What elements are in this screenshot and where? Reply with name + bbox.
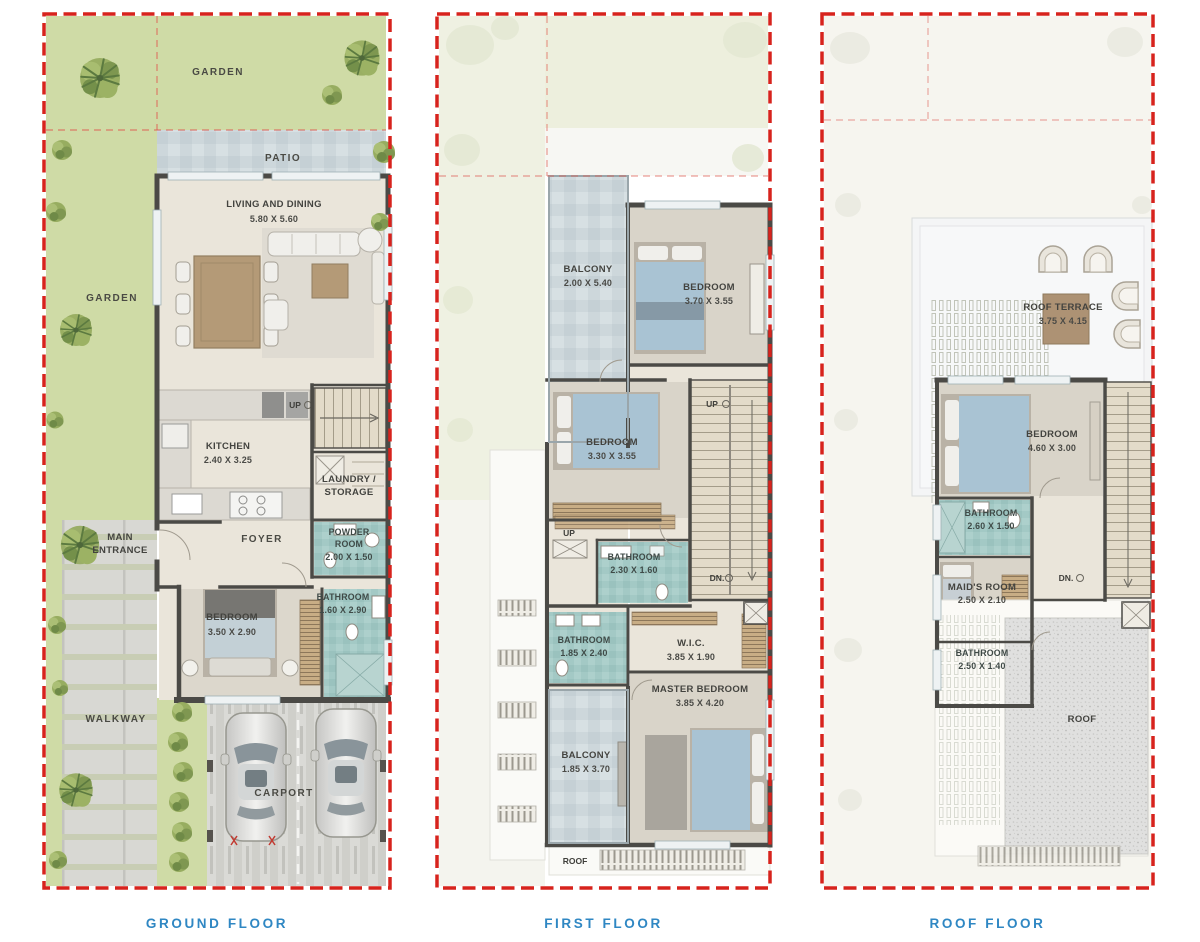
ground-entrance-path bbox=[62, 520, 157, 886]
label-roof-strip: ROOF bbox=[563, 856, 588, 866]
first-stairs bbox=[690, 380, 770, 600]
label-roof-terrace-dim: 3.75 X 4.15 bbox=[1039, 316, 1087, 326]
label-bathroom: BATHROOM bbox=[317, 592, 370, 602]
label-up-small: UP bbox=[563, 528, 575, 538]
label-balcony-bottom: BALCONY bbox=[561, 750, 610, 761]
label-kitchen-dim: 2.40 X 3.25 bbox=[204, 455, 252, 465]
label-powder-2: ROOM bbox=[335, 539, 363, 549]
first-shaft bbox=[744, 602, 768, 624]
label-walkway: WALKWAY bbox=[85, 714, 146, 725]
label-bedroom-top: BEDROOM bbox=[683, 282, 735, 293]
roof-shaft bbox=[1122, 602, 1150, 628]
label-patio: PATIO bbox=[265, 153, 301, 164]
label-roof-bedroom: BEDROOM bbox=[1026, 429, 1078, 440]
roof-floor-plan: ROOF TERRACE 3.75 X 4.15 BEDROOM 4.60 X … bbox=[822, 14, 1153, 888]
label-roof-dn: DN. bbox=[1059, 573, 1074, 583]
label-up: UP bbox=[289, 400, 301, 410]
label-powder-dim: 2.00 X 1.50 bbox=[325, 552, 372, 562]
label-bathroom-mid: BATHROOM bbox=[608, 552, 661, 562]
label-bedroom: BEDROOM bbox=[206, 612, 258, 623]
label-wic: W.I.C. bbox=[677, 638, 705, 649]
label-roof-bathroom-bottom-dim: 2.50 X 1.40 bbox=[958, 661, 1005, 671]
floor-plan-sheet: GARDEN PATIO LIVING AND DINING 5.80 X 5.… bbox=[0, 0, 1200, 942]
label-balcony-bottom-dim: 1.85 X 3.70 bbox=[562, 764, 610, 774]
label-garden-top: GARDEN bbox=[192, 67, 244, 78]
roof-area bbox=[935, 600, 1148, 866]
label-main-entrance-2: ENTRANCE bbox=[92, 545, 147, 556]
label-garden-left: GARDEN bbox=[86, 293, 138, 304]
label-master: MASTER BEDROOM bbox=[652, 684, 749, 695]
label-roof-bedroom-dim: 4.60 X 3.00 bbox=[1028, 443, 1076, 453]
label-maids-room: MAID'S ROOM bbox=[948, 582, 1016, 593]
label-bedroom-mid: BEDROOM bbox=[586, 437, 638, 448]
label-roof-bathroom-bottom: BATHROOM bbox=[956, 648, 1009, 658]
label-bathroom-left-dim: 1.85 X 2.40 bbox=[560, 648, 607, 658]
label-laundry: LAUNDRY / bbox=[322, 474, 376, 485]
label-dn: DN. bbox=[710, 573, 725, 583]
label-main-entrance: MAIN bbox=[107, 532, 132, 543]
label-master-dim: 3.85 X 4.20 bbox=[676, 698, 724, 708]
label-roof-terrace: ROOF TERRACE bbox=[1023, 302, 1103, 313]
caption-roof-floor: ROOF FLOOR bbox=[822, 916, 1153, 931]
first-floor-plan: BALCONY 2.00 X 5.40 BEDROOM 3.70 X 3.55 … bbox=[437, 14, 774, 888]
label-roof-bathroom-top-dim: 2.60 X 1.50 bbox=[967, 521, 1014, 531]
label-bathroom-left: BATHROOM bbox=[558, 635, 611, 645]
ground-stairs bbox=[305, 388, 387, 448]
label-living-dim: 5.80 X 5.60 bbox=[250, 214, 298, 224]
label-maids-room-dim: 2.50 X 2.10 bbox=[958, 595, 1006, 605]
label-carport: CARPORT bbox=[254, 788, 313, 799]
label-laundry-2: STORAGE bbox=[325, 487, 374, 498]
floor-plans-canvas: GARDEN PATIO LIVING AND DINING 5.80 X 5.… bbox=[0, 0, 1200, 942]
label-roof-bathroom-top: BATHROOM bbox=[965, 508, 1018, 518]
label-bathroom-dim: 1.60 X 2.90 bbox=[319, 605, 366, 615]
label-kitchen: KITCHEN bbox=[206, 441, 250, 452]
label-balcony-top-dim: 2.00 X 5.40 bbox=[564, 278, 612, 288]
caption-first-floor: FIRST FLOOR bbox=[437, 916, 770, 931]
label-up-main: UP bbox=[706, 399, 718, 409]
ground-floor-plan: GARDEN PATIO LIVING AND DINING 5.80 X 5.… bbox=[44, 14, 395, 888]
label-roof-area: ROOF bbox=[1068, 714, 1097, 725]
first-master-furniture bbox=[645, 728, 768, 832]
first-roof-strip-left bbox=[490, 450, 545, 860]
label-living: LIVING AND DINING bbox=[226, 199, 322, 210]
label-powder: POWDER bbox=[329, 527, 370, 537]
label-balcony-top: BALCONY bbox=[563, 264, 612, 275]
label-foyer: FOYER bbox=[241, 534, 282, 545]
label-wic-dim: 3.85 X 1.90 bbox=[667, 652, 715, 662]
label-bedroom-top-dim: 3.70 X 3.55 bbox=[685, 296, 733, 306]
caption-ground-floor: GROUND FLOOR bbox=[44, 916, 390, 931]
label-bedroom-dim: 3.50 X 2.90 bbox=[208, 627, 256, 637]
label-bedroom-mid-dim: 3.30 X 3.55 bbox=[588, 451, 636, 461]
label-bathroom-mid-dim: 2.30 X 1.60 bbox=[610, 565, 657, 575]
